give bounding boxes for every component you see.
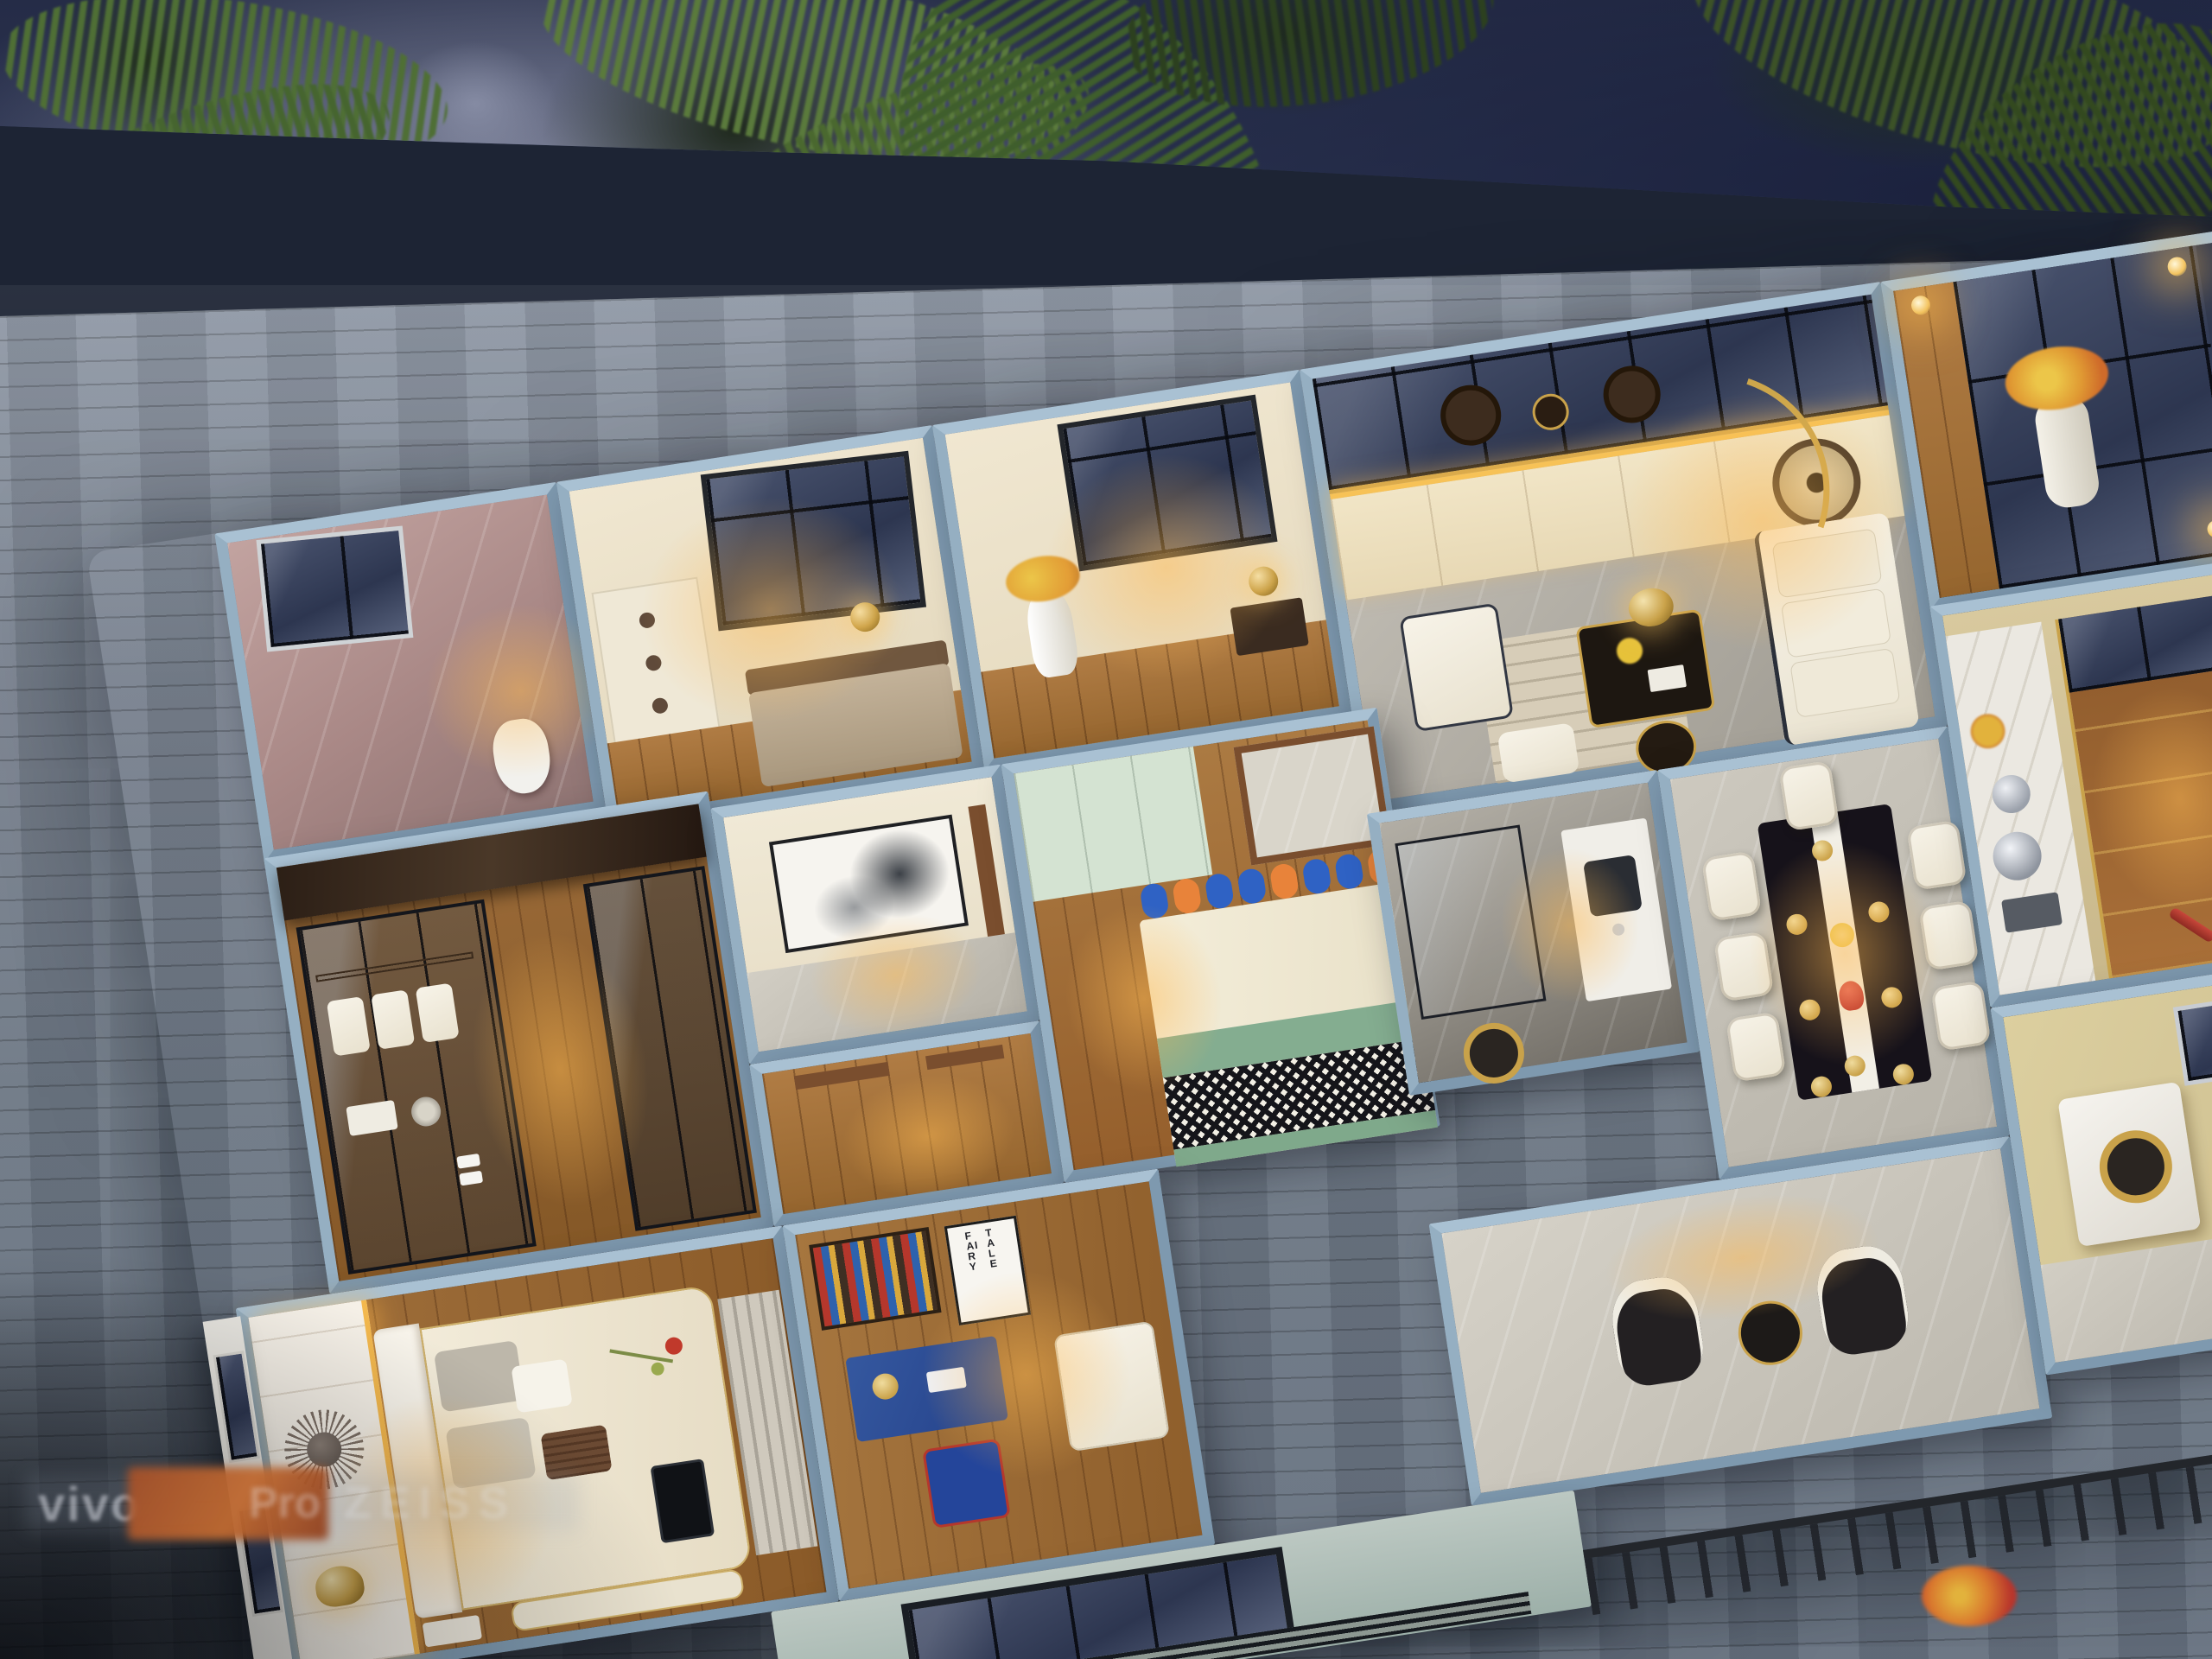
upper-glass-cabinets xyxy=(2058,592,2212,693)
washing-machine xyxy=(2057,1082,2201,1247)
bed-mattress xyxy=(420,1285,753,1611)
terrace-table xyxy=(1734,1297,1807,1370)
armchair xyxy=(1399,603,1514,733)
bookshelf xyxy=(809,1227,941,1331)
room-terrace xyxy=(1429,1136,2053,1506)
room-hallway-art xyxy=(710,764,1039,1064)
dining-chair-stray xyxy=(1497,722,1580,784)
reading-armchair xyxy=(1053,1321,1170,1452)
gold-ornament xyxy=(871,1372,900,1402)
dining-chairs xyxy=(1670,739,1997,1167)
ink-horse-artwork xyxy=(769,815,969,954)
door-frame xyxy=(925,1045,1004,1070)
nightstand xyxy=(423,1615,482,1648)
dining-chair xyxy=(1918,900,1979,971)
window xyxy=(701,451,926,632)
flowers xyxy=(1615,636,1644,665)
blue-pill-cushion xyxy=(1204,872,1235,910)
room-bathroom-2 xyxy=(1367,770,1700,1096)
room-sunroom xyxy=(1880,227,2212,610)
white-pillow xyxy=(511,1359,572,1414)
washer-gold-door xyxy=(2094,1125,2177,1208)
door-frame xyxy=(968,804,1007,952)
dining-chair xyxy=(1701,851,1762,922)
sink-counter xyxy=(1560,818,1672,1002)
coffee-table xyxy=(1575,608,1715,728)
mountains xyxy=(0,206,363,266)
room-kids-bedroom xyxy=(1001,708,1440,1183)
gray-pillow xyxy=(434,1340,524,1413)
blue-desk xyxy=(845,1336,1008,1442)
blue-chair xyxy=(922,1439,1011,1529)
green-bud xyxy=(651,1362,665,1376)
dining-chair xyxy=(1713,931,1774,1001)
orange-pill-cushion xyxy=(1269,862,1300,900)
dining-chair xyxy=(1778,760,1839,831)
window xyxy=(256,526,413,652)
rattan-chair xyxy=(1436,381,1505,450)
room-study: FAIRY TALE xyxy=(782,1169,1215,1602)
room-bedroom-2 xyxy=(556,425,985,828)
silver-pot xyxy=(1990,829,2045,884)
blue-pill-cushion xyxy=(1236,868,1268,906)
silver-pot xyxy=(1990,772,2033,816)
photo-of-architectural-model: FAIRY TALE xyxy=(0,0,2212,1659)
dining-chair xyxy=(1906,820,1967,891)
yellow-flowers xyxy=(1002,551,1083,607)
room-walk-in-closet xyxy=(264,791,773,1294)
blue-pill-cushion xyxy=(1334,853,1365,891)
watermark-brand-text: vivo xyxy=(38,1476,142,1532)
glass-shower xyxy=(1395,825,1546,1020)
white-sneaker xyxy=(456,1154,480,1169)
books xyxy=(926,1367,967,1393)
room-master-bedroom xyxy=(236,1225,840,1659)
window xyxy=(1057,395,1277,572)
watch-display xyxy=(410,1095,443,1128)
white-sneaker xyxy=(459,1171,483,1186)
folded-towels xyxy=(346,1100,397,1136)
camera-watermark: vivo Pro ZEISS xyxy=(26,1464,596,1543)
orange-pill-cushion xyxy=(1172,877,1203,915)
fairy-tale-poster: FAIRY TALE xyxy=(944,1216,1031,1325)
red-flower xyxy=(664,1336,683,1356)
room-bathroom-pink xyxy=(214,482,606,862)
black-wicker-chair xyxy=(1812,1242,1913,1359)
room-living xyxy=(1300,282,1948,814)
flower-stem xyxy=(609,1349,673,1363)
pillow xyxy=(1163,917,1267,984)
tray xyxy=(2001,892,2063,932)
toilet xyxy=(489,715,555,798)
faucet xyxy=(1611,923,1625,937)
doorway-marble xyxy=(1234,726,1392,865)
sink-basin xyxy=(1583,855,1643,917)
black-wicker-chair xyxy=(1607,1272,1708,1389)
side-table xyxy=(1530,391,1572,433)
door-frame xyxy=(794,1062,890,1090)
room-dining xyxy=(1657,726,2010,1179)
framed-window xyxy=(2173,987,2212,1086)
blue-pill-cushion xyxy=(1301,857,1332,895)
potted-flowers xyxy=(1922,1566,2017,1626)
watermark-ghost-zeiss: ZEISS xyxy=(344,1478,517,1529)
blue-pill-cushion xyxy=(1139,882,1170,920)
room-bedroom-3 xyxy=(932,370,1352,772)
glass-wardrobe-left xyxy=(296,899,537,1274)
gold-lamp xyxy=(1247,564,1281,598)
toilet-gold-lid xyxy=(1459,1019,1529,1088)
dining-chair xyxy=(1930,981,1991,1052)
watermark-ghost-pro: Pro xyxy=(249,1478,321,1528)
mushroom-table-lamp xyxy=(313,1563,366,1610)
dining-chair xyxy=(1726,1011,1786,1082)
tablet-on-bed xyxy=(650,1459,715,1543)
